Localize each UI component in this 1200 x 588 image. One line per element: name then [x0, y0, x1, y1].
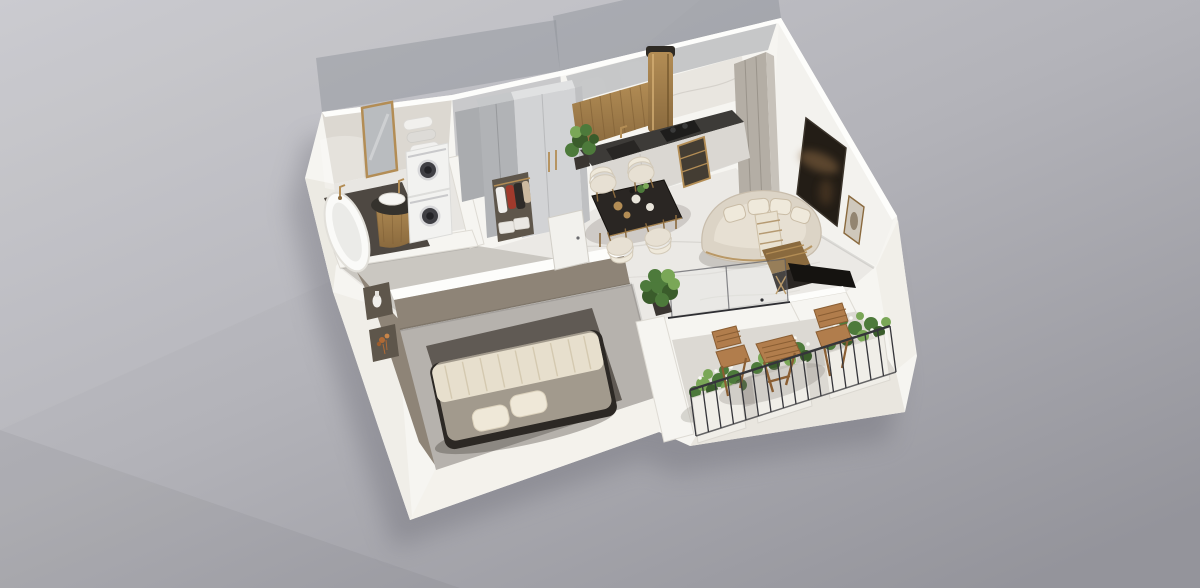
range-hood — [646, 46, 675, 132]
hall-interior-door — [548, 210, 589, 270]
open-clothes-rack — [492, 172, 534, 242]
gold-open-shelf — [678, 137, 710, 187]
stacked-washer-dryer — [406, 143, 452, 243]
gold-framed-mirror — [362, 102, 397, 177]
screenshot-root — [0, 0, 1200, 588]
floorplan-3d-render — [0, 0, 1200, 588]
